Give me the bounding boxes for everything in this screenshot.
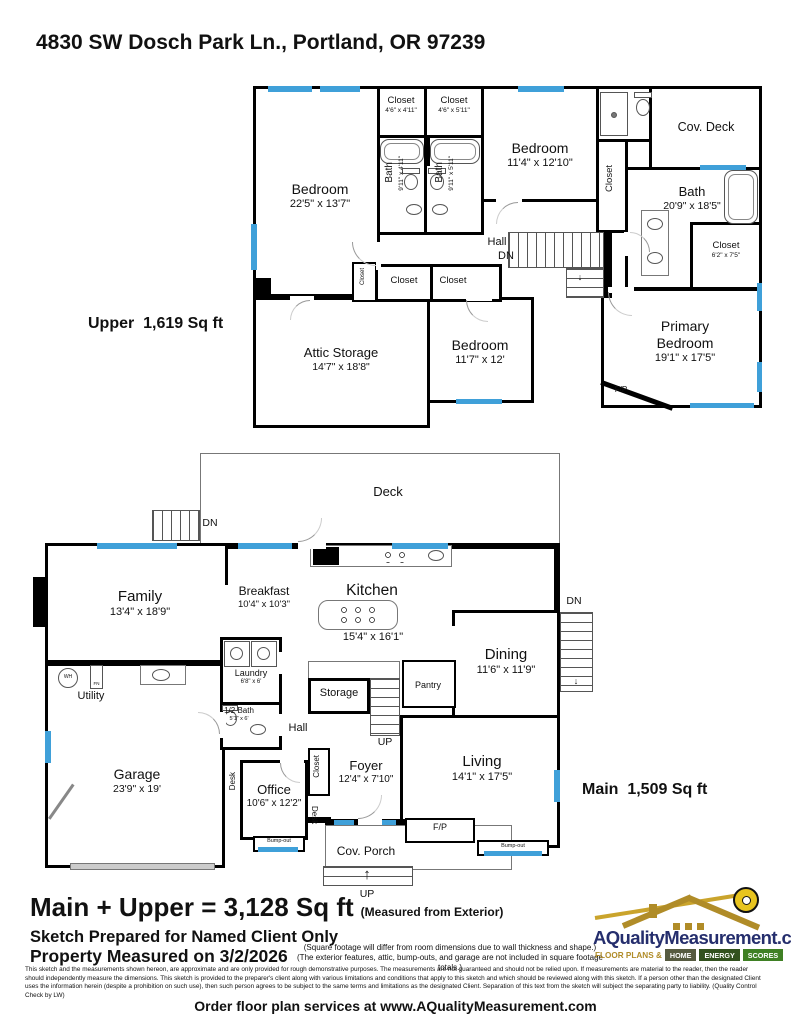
label-up-stairs: UP bbox=[370, 736, 400, 749]
room-label-primary-bedroom: Primary Bedroom 19'1" x 17'5" bbox=[635, 318, 735, 366]
island-burners-icon bbox=[336, 604, 380, 626]
room-dims: 14'7" x 18'8" bbox=[281, 361, 401, 374]
garage-door bbox=[70, 863, 215, 870]
window-segment bbox=[554, 770, 560, 802]
room-label-foyer: Foyer 12'4" x 7'10" bbox=[306, 758, 426, 786]
room-name: Laundry bbox=[221, 668, 281, 679]
room-label-kitchen: Kitchen bbox=[312, 582, 432, 601]
upper-area-label: Upper 1,619 Sq ft bbox=[88, 314, 223, 334]
room-dims: 22'5" x 13'7" bbox=[260, 198, 380, 211]
tagline-home: HOME bbox=[665, 949, 697, 961]
label-fireplace-upper: F/P bbox=[606, 385, 636, 395]
room-dims-bath-2: 9'11" x 5'11" bbox=[448, 156, 456, 191]
door-opening bbox=[358, 818, 382, 825]
window-segment bbox=[251, 224, 257, 270]
room-dims: 4'6" x 5'11" bbox=[428, 107, 480, 115]
wall bbox=[253, 278, 271, 297]
furnace-label: FN bbox=[90, 681, 103, 686]
room-label-bedroom-2: Bedroom 11'4" x 12'10" bbox=[480, 140, 600, 170]
shower-drain-icon bbox=[611, 112, 617, 118]
room-label-attic: Attic Storage 14'7" x 18'8" bbox=[281, 345, 401, 374]
room-name: Garage bbox=[77, 766, 197, 783]
label-deck: Deck bbox=[348, 484, 428, 500]
room-label-closet-3: Closet bbox=[604, 165, 616, 192]
label-bumpout-office: Bump-out bbox=[256, 838, 302, 845]
window-segment bbox=[518, 86, 564, 92]
label-storage: Storage bbox=[309, 687, 369, 700]
room-label-laundry: Laundry 6'8" x 6' bbox=[221, 668, 281, 686]
door-opening bbox=[290, 296, 314, 301]
window-segment bbox=[757, 362, 762, 392]
label-utility: Utility bbox=[61, 690, 121, 703]
label-dn-upper: DN bbox=[486, 250, 526, 263]
sink-icon bbox=[428, 550, 444, 561]
window-segment bbox=[334, 820, 354, 825]
room-dims: 11'7" x 12' bbox=[420, 354, 540, 367]
sink-icon bbox=[647, 252, 663, 264]
sink-icon bbox=[432, 204, 448, 215]
window-segment bbox=[484, 851, 542, 856]
room-label-family: Family 13'4" x 18'9" bbox=[80, 588, 200, 620]
room-dims: 4'6" x 4'11" bbox=[377, 107, 425, 115]
room-label-closet-6: Closet bbox=[379, 275, 429, 287]
room-dims: 5'1" x 6' bbox=[223, 716, 255, 723]
door-opening bbox=[496, 198, 522, 203]
down-arrow-icon: ↓ bbox=[572, 272, 588, 283]
room-dims: 10'4" x 10'3" bbox=[214, 599, 314, 611]
room-label-breakfast: Breakfast 10'4" x 10'3" bbox=[214, 584, 314, 610]
room-dims: 13'4" x 18'9" bbox=[80, 606, 200, 619]
tagline-left: FLOOR PLANS & bbox=[595, 951, 662, 960]
room-label-garage: Garage 23'9" x 19' bbox=[77, 766, 197, 796]
logo-tagline: FLOOR PLANS & HOME ENERGY SCORES bbox=[595, 949, 783, 961]
room-name: Bath bbox=[642, 184, 742, 200]
room-dims: 20'9" x 18'5" bbox=[642, 200, 742, 213]
label-cov-porch: Cov. Porch bbox=[316, 844, 416, 859]
sqft-note-1: (Square footage will differ from room di… bbox=[298, 943, 602, 953]
toilet-icon bbox=[404, 174, 418, 190]
door-opening bbox=[376, 242, 381, 270]
toilet-icon bbox=[634, 92, 652, 98]
room-label-bedroom-3: Bedroom 11'7" x 12' bbox=[420, 337, 540, 367]
room-dims: 11'4" x 12'10" bbox=[480, 157, 600, 170]
sink-icon bbox=[406, 204, 422, 215]
room-label-closet-2: Closet 4'6" x 5'11" bbox=[428, 95, 480, 115]
order-line: Order floor plan services at www.AQualit… bbox=[0, 998, 791, 1015]
stairs-deck-dn bbox=[152, 510, 200, 541]
tagline-scores: SCORES bbox=[743, 949, 783, 961]
down-arrow-icon: ↓ bbox=[568, 676, 584, 687]
room-label-bath-3: Bath 20'9" x 18'5" bbox=[642, 184, 742, 213]
room-name: Bedroom bbox=[420, 337, 540, 354]
up-arrow-icon: ↑ bbox=[359, 866, 375, 884]
room-label-closet-1: Closet 4'6" x 4'11" bbox=[377, 95, 425, 115]
chimney-block bbox=[33, 577, 47, 627]
room-name: Foyer bbox=[306, 758, 426, 774]
room-dims: 11'6" x 11'9" bbox=[446, 664, 566, 677]
tape-measure-hub bbox=[742, 896, 751, 905]
disclaimer: This sketch and the measurements shown h… bbox=[25, 966, 767, 1001]
total-area-note: (Measured from Exterior) bbox=[361, 905, 504, 919]
room-dims-kitchen: 15'4" x 16'1" bbox=[313, 631, 433, 644]
room-name: Family bbox=[80, 588, 200, 606]
toilet-icon bbox=[636, 99, 650, 116]
window-segment bbox=[238, 543, 292, 549]
wall bbox=[424, 137, 430, 166]
window-segment bbox=[320, 86, 360, 92]
window-segment bbox=[690, 403, 754, 408]
room-dims: 14'1" x 17'5" bbox=[422, 771, 542, 784]
room-label-living: Living 14'1" x 17'5" bbox=[422, 753, 542, 785]
room-name: Attic Storage bbox=[281, 345, 401, 361]
room-label-cov-deck: Cov. Deck bbox=[656, 120, 756, 135]
room-name: 1/2 Bath bbox=[223, 706, 255, 716]
label-deck-dn: DN bbox=[195, 517, 225, 530]
room-label-closet-4: Closet 6'2" x 7'5" bbox=[690, 240, 762, 260]
window-segment bbox=[456, 399, 502, 404]
room-name: Primary Bedroom bbox=[635, 318, 735, 352]
room-label-closet-7: Closet bbox=[428, 275, 478, 287]
room-label-dining: Dining 11'6" x 11'9" bbox=[446, 646, 566, 678]
total-area: Main + Upper = 3,128 Sq ft bbox=[30, 892, 354, 923]
label-bumpout-living: Bump-out bbox=[490, 843, 536, 850]
main-area-label: Main 1,509 Sq ft bbox=[582, 780, 707, 800]
range-icon bbox=[313, 547, 339, 565]
cooktop-icon bbox=[380, 549, 408, 563]
prepared-for: Sketch Prepared for Named Client Only bbox=[30, 927, 338, 947]
total-area-line: Main + Upper = 3,128 Sq ft (Measured fro… bbox=[30, 892, 503, 923]
room-label-bedroom-1: Bedroom 22'5" x 13'7" bbox=[260, 181, 380, 211]
tagline-energy: ENERGY bbox=[699, 949, 739, 961]
chimney bbox=[649, 904, 657, 918]
room-name: Dining bbox=[446, 646, 566, 664]
water-heater-label: WH bbox=[58, 674, 78, 680]
measured-on: Property Measured on 3/2/2026 bbox=[30, 946, 288, 967]
room-name: Living bbox=[422, 753, 542, 771]
room-label-bath-2: Bath bbox=[434, 162, 446, 183]
window-segment bbox=[757, 283, 762, 311]
room-dims-bath-1: 9'11" x 4'11" bbox=[398, 156, 406, 191]
page-title: 4830 SW Dosch Park Ln., Portland, OR 972… bbox=[36, 30, 456, 56]
label-desk-1: Desk bbox=[228, 772, 238, 790]
room-name: Closet bbox=[428, 95, 480, 107]
room-dims: 23'9" x 19' bbox=[77, 783, 197, 796]
room-label-bath-1: Bath bbox=[384, 162, 396, 183]
window-segment bbox=[392, 543, 448, 549]
room-name: Bedroom bbox=[480, 140, 600, 157]
room-name: Closet bbox=[377, 95, 425, 107]
room-name: Closet bbox=[690, 240, 762, 252]
label-fireplace-main: F/P bbox=[425, 822, 455, 833]
label-hall-upper: Hall bbox=[477, 236, 517, 249]
door-swing bbox=[358, 795, 382, 819]
label-pantry: Pantry bbox=[404, 680, 452, 691]
stairs-main-up bbox=[370, 678, 400, 736]
window-segment bbox=[45, 731, 51, 763]
logo-site: AQualityMeasurement.com bbox=[593, 927, 791, 950]
label-hall-main: Hall bbox=[278, 722, 318, 735]
room-dims: 12'4" x 7'10" bbox=[306, 774, 426, 786]
sink-icon bbox=[647, 218, 663, 230]
hall-cabinets bbox=[308, 661, 400, 679]
washer-door-icon bbox=[230, 647, 243, 660]
door-opening bbox=[298, 542, 326, 549]
dryer-door-icon bbox=[257, 647, 270, 660]
logo: AQualityMeasurement.com FLOOR PLANS & HO… bbox=[593, 887, 791, 965]
room-label-half-bath: 1/2 Bath 5'1" x 6' bbox=[223, 706, 255, 722]
room-label-closet-5: Closet bbox=[360, 268, 367, 285]
room-dims: 6'2" x 7'5" bbox=[690, 252, 762, 260]
window-segment bbox=[258, 847, 298, 852]
label-desk-2: Desk bbox=[309, 806, 319, 824]
room-dims: 19'1" x 17'5" bbox=[635, 352, 735, 365]
door-swing bbox=[496, 202, 518, 224]
floor-plan-sketch: 4830 SW Dosch Park Ln., Portland, OR 972… bbox=[0, 0, 791, 1024]
window-segment bbox=[382, 820, 396, 825]
window-segment bbox=[268, 86, 312, 92]
room-dims: 6'8" x 6' bbox=[221, 679, 281, 686]
sink-icon bbox=[152, 669, 170, 681]
room-name: Breakfast bbox=[214, 584, 314, 599]
room-name: Bedroom bbox=[260, 181, 380, 198]
label-dn-main: DN bbox=[559, 595, 589, 608]
sink-icon bbox=[250, 724, 266, 735]
window-segment bbox=[97, 543, 177, 549]
